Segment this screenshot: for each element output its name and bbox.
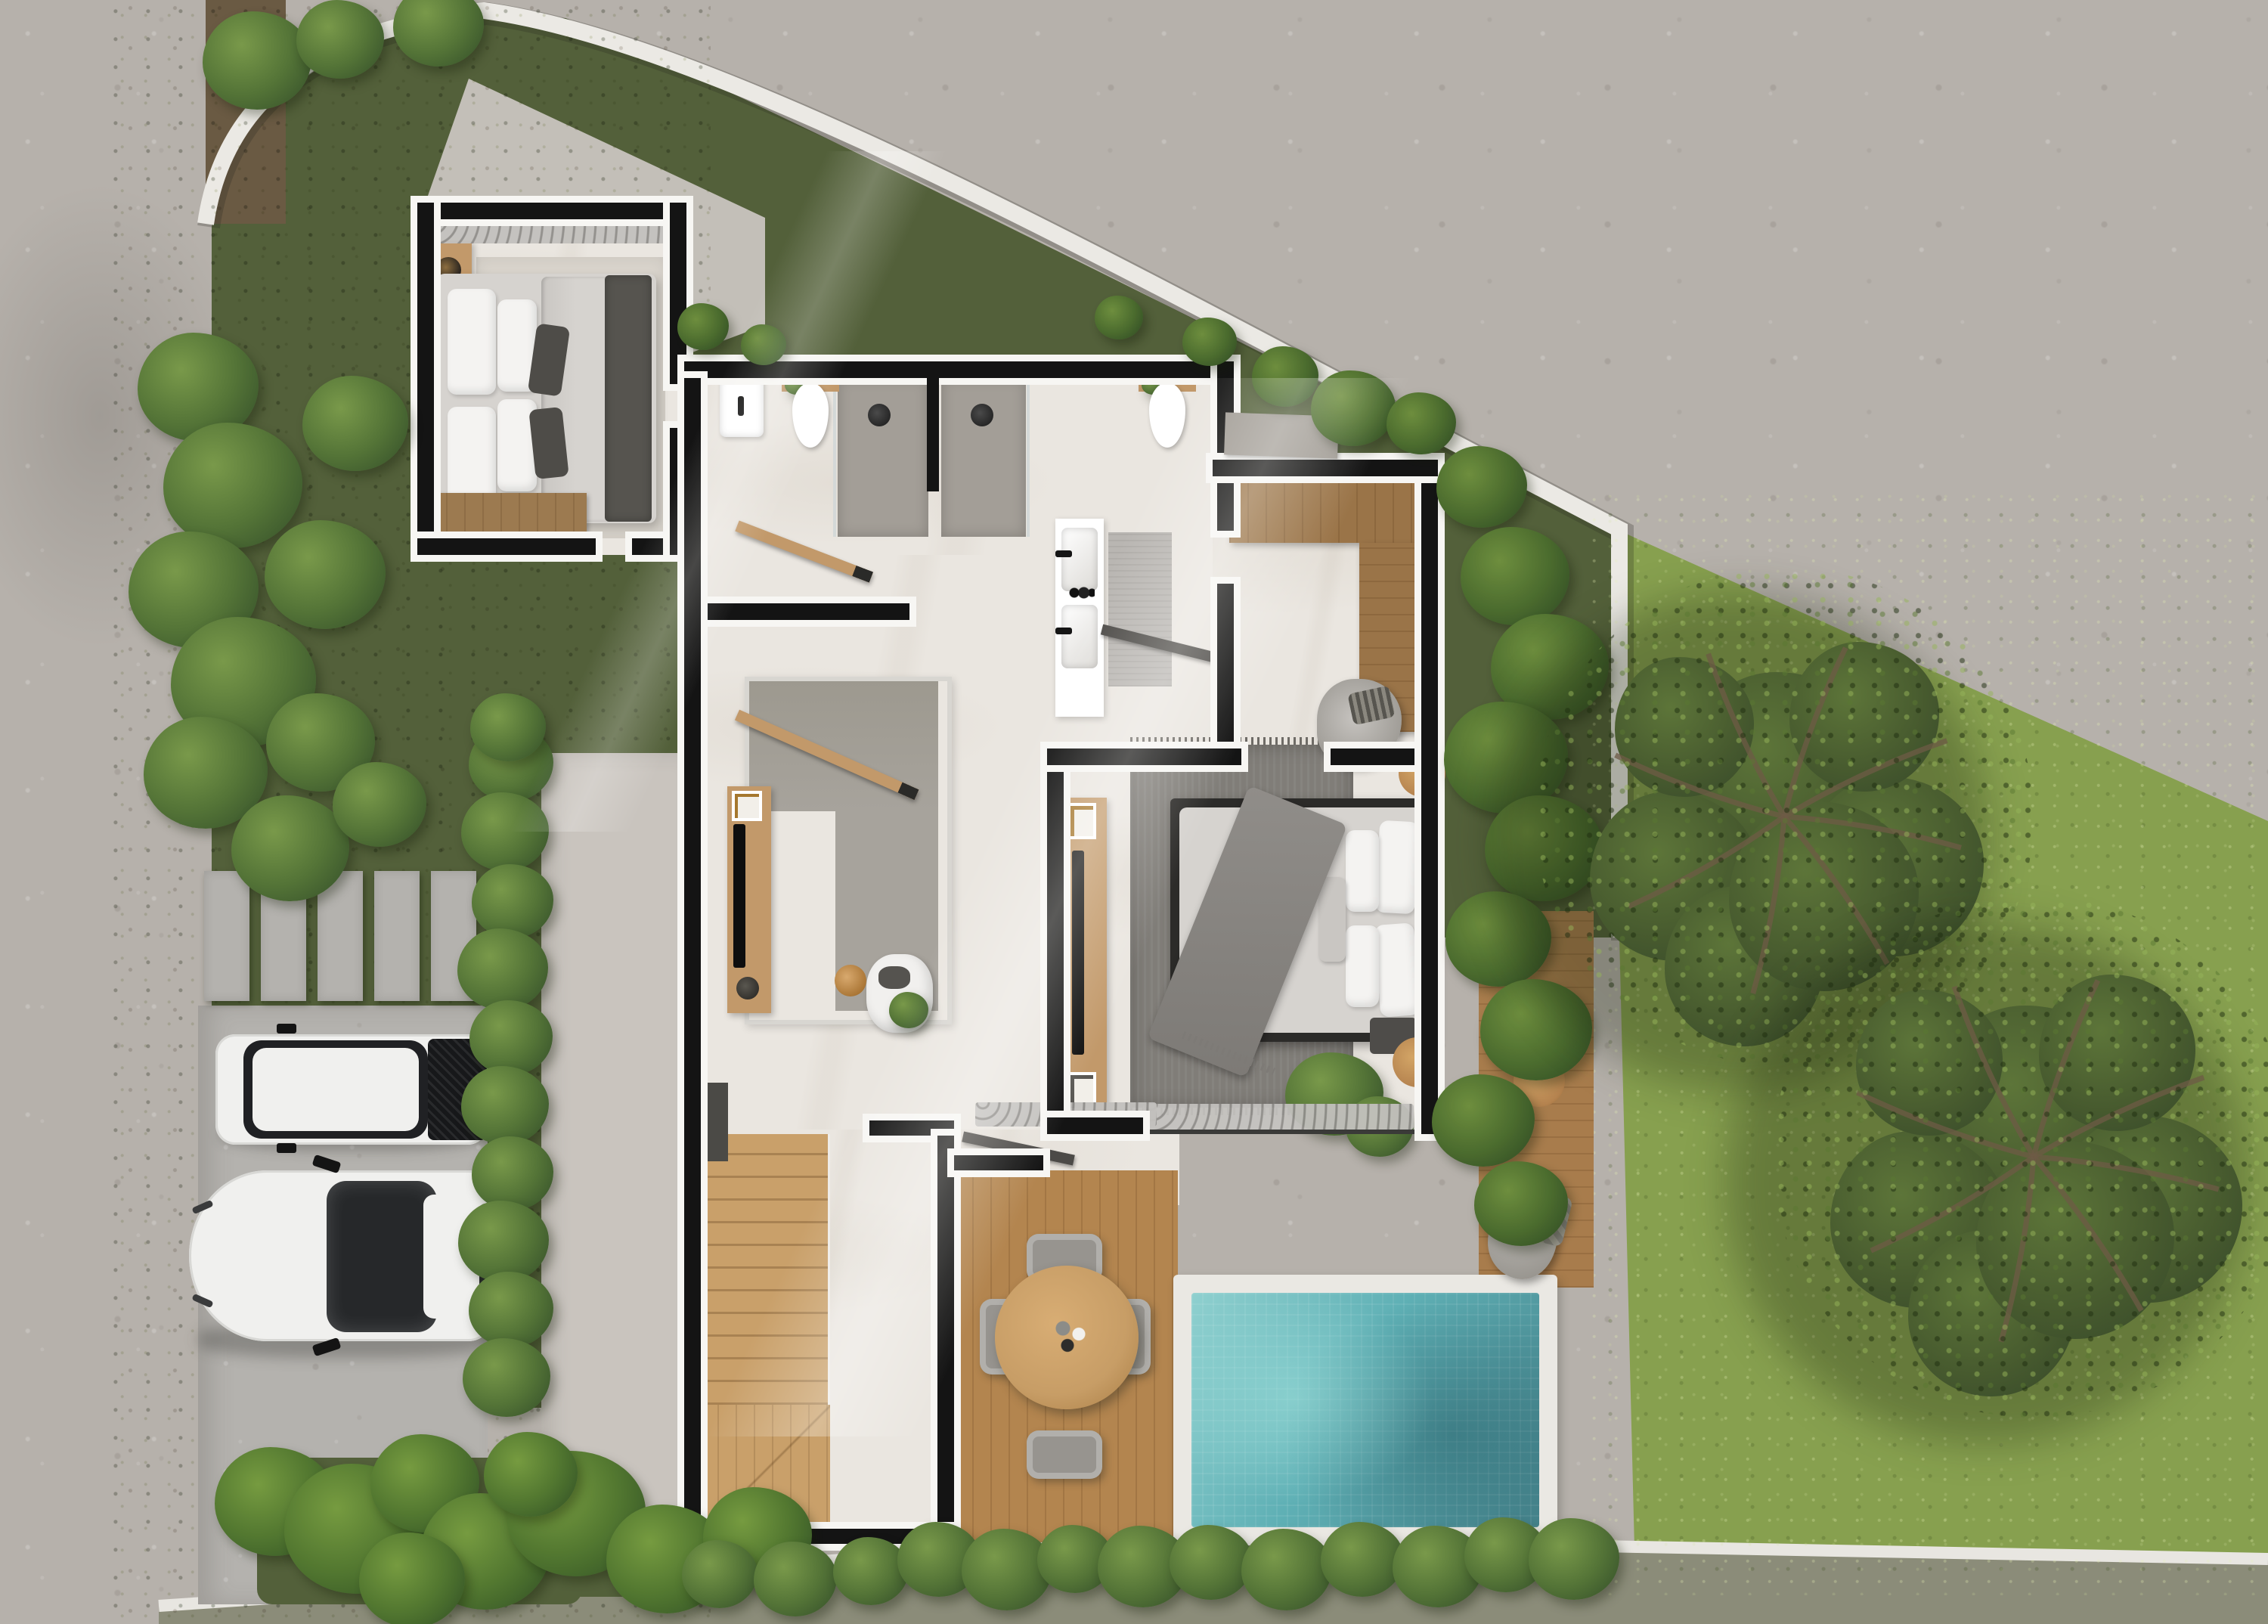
stepping-stone: [374, 871, 420, 1001]
vanity-accessories: [1067, 585, 1095, 600]
car-coupe-rear-glass: [479, 1204, 491, 1309]
faucet: [1055, 628, 1072, 634]
decor-round: [736, 977, 759, 1000]
wall: [670, 203, 686, 384]
pillow: [1374, 922, 1420, 1017]
shower-head: [971, 404, 993, 426]
pillow: [1346, 925, 1379, 1007]
wall: [684, 1529, 954, 1544]
bath-mat: [1108, 532, 1172, 686]
wall: [927, 378, 939, 491]
wardrobe-top: [1229, 476, 1423, 543]
tableware: [1049, 1317, 1095, 1355]
car-suv-roof: [253, 1048, 419, 1131]
bed-1-throw: [605, 275, 652, 522]
wall: [1213, 460, 1438, 476]
wall: [684, 361, 1234, 378]
wall: [954, 1155, 1043, 1170]
accent-pillow: [528, 407, 569, 479]
lawn: [1619, 531, 2268, 1571]
shower-head: [868, 404, 891, 426]
car-coupe-roof: [423, 1195, 482, 1319]
floor-plan-scene: [0, 0, 2268, 1624]
wall: [684, 603, 909, 620]
rattan-pouf: [1514, 1055, 1565, 1107]
lounge-cushion: [878, 966, 910, 989]
tv-console: [1064, 798, 1107, 1115]
curtains: [423, 218, 673, 243]
indoor-plant: [889, 992, 928, 1028]
faucet: [1055, 550, 1072, 557]
art-print: [1067, 803, 1096, 839]
walkway-west: [541, 753, 684, 1544]
tv: [1072, 851, 1084, 1055]
wall: [1047, 765, 1064, 1119]
pillow: [1375, 820, 1419, 915]
shower-glass: [1027, 378, 1030, 537]
concrete-pad: [1224, 412, 1339, 458]
faucet: [738, 396, 744, 416]
wall: [417, 538, 596, 555]
car-coupe-glass: [327, 1181, 437, 1332]
dining-chair: [1027, 1430, 1102, 1479]
wall: [1217, 584, 1234, 750]
stepping-stone: [431, 871, 476, 1001]
car-mirror: [277, 1143, 296, 1153]
art-print: [732, 791, 762, 821]
stair-landing-seam: [699, 1405, 830, 1538]
curtain-rod: [1143, 1130, 1430, 1134]
wall: [684, 378, 701, 1544]
pillow: [448, 289, 496, 395]
wall: [1047, 1117, 1143, 1134]
wall: [417, 203, 434, 555]
stepping-stone: [204, 871, 249, 1001]
tv: [733, 824, 745, 968]
shower-floor: [941, 378, 1026, 537]
stepping-stone: [318, 871, 363, 1001]
wall: [1047, 748, 1241, 765]
stepping-stone: [261, 871, 306, 1001]
shower-glass: [833, 378, 836, 537]
vanity-sink: [1061, 605, 1098, 668]
car-mirror: [277, 1024, 296, 1034]
side-table-copper: [835, 965, 866, 996]
wall: [869, 1120, 954, 1136]
staircase: [699, 1134, 830, 1405]
car-suv-cargo-bed: [428, 1039, 487, 1140]
curtains: [1143, 1104, 1414, 1130]
vanity-sink: [1061, 528, 1098, 591]
wall: [417, 203, 686, 219]
pool-water: [1191, 1293, 1539, 1527]
pillow: [1346, 830, 1379, 912]
sw-garden-patch: [257, 1458, 582, 1604]
kitchen-unit: [701, 1083, 728, 1161]
shower-floor: [838, 378, 928, 537]
wall: [1421, 460, 1438, 1134]
lumbar-pillow: [1318, 877, 1346, 962]
bedroom-1-bench: [428, 493, 587, 537]
wall: [937, 1136, 954, 1544]
